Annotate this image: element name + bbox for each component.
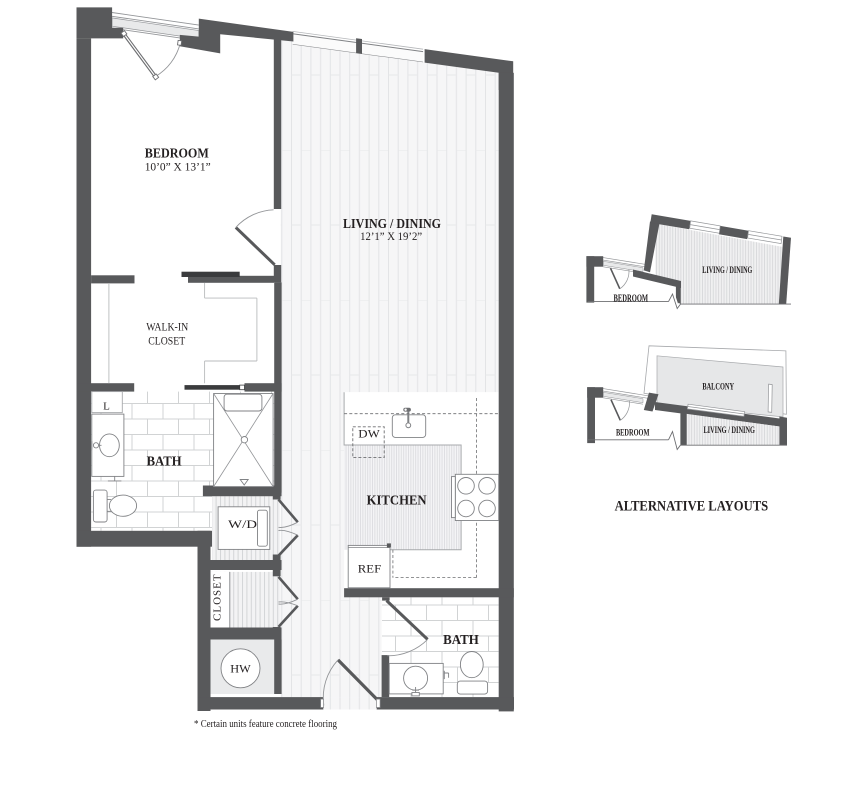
svg-text:L: L bbox=[103, 401, 110, 413]
svg-text:HW: HW bbox=[230, 664, 251, 676]
svg-text:BATH: BATH bbox=[147, 454, 182, 469]
svg-text:LIVING / DINING: LIVING / DINING bbox=[702, 265, 752, 275]
svg-text:BATH: BATH bbox=[443, 633, 479, 648]
svg-text:10’0” X 13’1”: 10’0” X 13’1” bbox=[145, 160, 211, 174]
svg-text:* Certain units feature concre: * Certain units feature concrete floorin… bbox=[194, 719, 337, 730]
svg-text:12’1” X 19’2”: 12’1” X 19’2” bbox=[360, 229, 422, 243]
svg-text:CLOSET: CLOSET bbox=[212, 573, 224, 621]
svg-text:REF: REF bbox=[358, 564, 381, 576]
svg-text:BALCONY: BALCONY bbox=[702, 382, 734, 392]
svg-text:BEDROOM: BEDROOM bbox=[616, 429, 650, 439]
svg-text:W/D: W/D bbox=[228, 517, 257, 531]
svg-text:ALTERNATIVE LAYOUTS: ALTERNATIVE LAYOUTS bbox=[615, 498, 769, 514]
svg-text:WALK-IN: WALK-IN bbox=[146, 320, 188, 334]
svg-text:LIVING / DINING: LIVING / DINING bbox=[703, 425, 755, 435]
svg-text:BEDROOM: BEDROOM bbox=[613, 293, 648, 304]
svg-text:KITCHEN: KITCHEN bbox=[367, 493, 427, 508]
svg-text:CLOSET: CLOSET bbox=[148, 334, 186, 348]
svg-text:BEDROOM: BEDROOM bbox=[145, 146, 209, 161]
svg-text:DW: DW bbox=[358, 428, 380, 440]
